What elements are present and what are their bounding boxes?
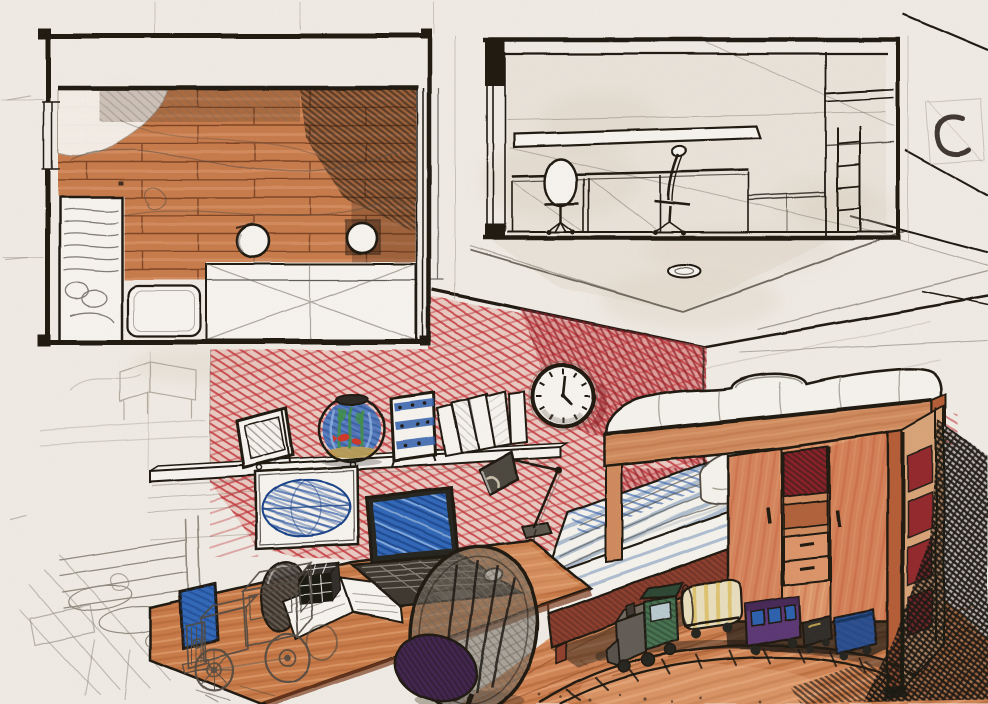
drawing-sheet: [0, 0, 988, 704]
sketch-page: Hand-drawn interior design presentation …: [0, 0, 988, 704]
paper-grain: [0, 0, 988, 704]
